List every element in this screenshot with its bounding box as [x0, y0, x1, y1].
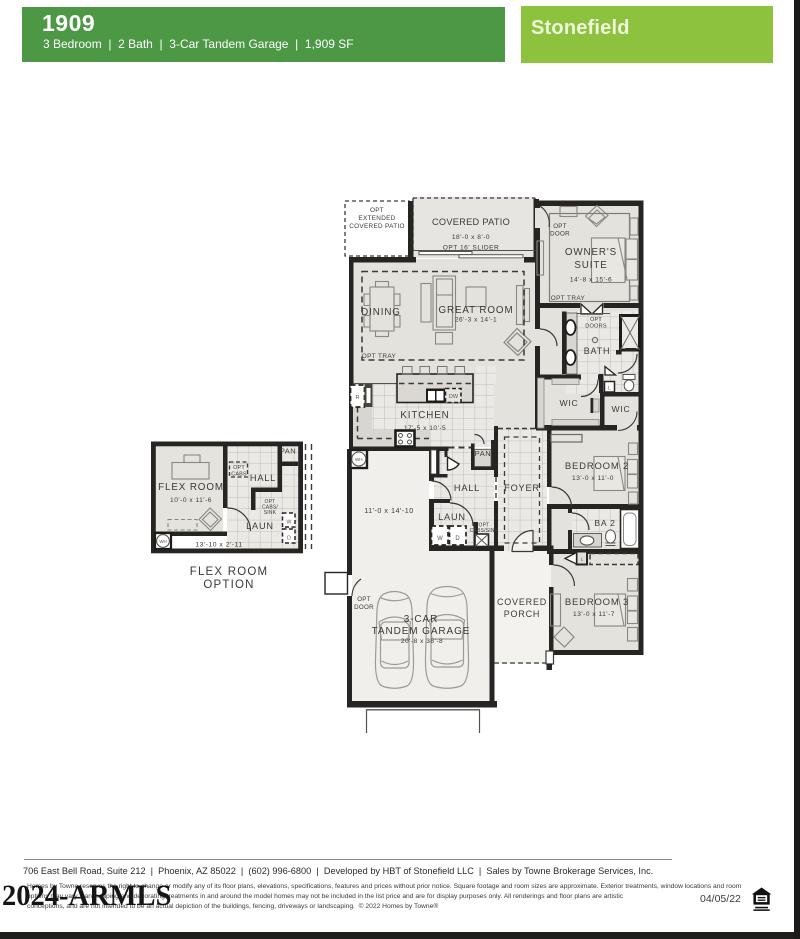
svg-text:20'-8 x 38'-8: 20'-8 x 38'-8	[401, 638, 443, 645]
svg-text:14'-8 x 15'-6: 14'-8 x 15'-6	[570, 277, 612, 284]
svg-text:BEDROOM 2: BEDROOM 2	[565, 461, 629, 472]
svg-text:17'-5 x 10'-5: 17'-5 x 10'-5	[404, 425, 446, 432]
svg-text:DINING: DINING	[361, 307, 401, 318]
svg-text:CABS: CABS	[231, 472, 247, 478]
svg-text:PAN: PAN	[475, 449, 492, 458]
svg-text:LAUN: LAUN	[246, 521, 274, 531]
svg-text:OPT TRAY: OPT TRAY	[362, 353, 397, 360]
svg-text:OPT: OPT	[357, 596, 371, 603]
svg-text:LAUN: LAUN	[438, 512, 466, 522]
svg-text:CABS/SINK: CABS/SINK	[470, 528, 499, 534]
svg-text:26'-3 x 14'-1: 26'-3 x 14'-1	[455, 317, 497, 324]
svg-text:13'-10 x 2'-11: 13'-10 x 2'-11	[195, 542, 242, 549]
svg-text:WH: WH	[159, 539, 166, 544]
svg-text:COVERED PATIO: COVERED PATIO	[432, 217, 510, 227]
svg-text:FOYER: FOYER	[504, 483, 540, 493]
svg-text:R: R	[356, 395, 360, 401]
svg-text:OPT: OPT	[553, 223, 567, 230]
svg-text:GREAT ROOM: GREAT ROOM	[438, 305, 513, 316]
svg-text:D: D	[455, 536, 460, 542]
svg-text:PORCH: PORCH	[504, 609, 541, 619]
svg-text:D: D	[287, 536, 291, 542]
svg-text:13'-0 x 11'-0: 13'-0 x 11'-0	[572, 475, 614, 482]
svg-text:FLEX ROOM: FLEX ROOM	[190, 566, 269, 578]
svg-text:COVERED: COVERED	[497, 597, 547, 607]
svg-text:COVERED PATIO: COVERED PATIO	[349, 223, 405, 230]
svg-text:11'-0 x 14'-10: 11'-0 x 14'-10	[364, 506, 414, 515]
svg-text:OPT: OPT	[233, 465, 245, 471]
svg-text:OPTION: OPTION	[203, 579, 254, 591]
svg-text:WIC: WIC	[611, 404, 630, 414]
svg-text:L: L	[581, 557, 584, 563]
svg-text:HALL: HALL	[250, 473, 276, 483]
svg-text:HALL: HALL	[454, 483, 480, 493]
svg-text:KITCHEN: KITCHEN	[400, 410, 449, 421]
svg-text:DW: DW	[449, 394, 459, 400]
svg-text:DOOR: DOOR	[550, 231, 570, 238]
svg-text:10'-0 x 11'-6: 10'-0 x 11'-6	[170, 497, 212, 504]
svg-text:FLEX ROOM: FLEX ROOM	[158, 482, 224, 493]
svg-text:BATH: BATH	[584, 346, 611, 356]
svg-text:BA 2: BA 2	[594, 518, 615, 528]
svg-text:OWNER'S: OWNER'S	[565, 247, 617, 258]
svg-text:OPT TRAY: OPT TRAY	[551, 295, 586, 302]
svg-text:OPT 16' SLIDER: OPT 16' SLIDER	[443, 245, 500, 252]
svg-text:L: L	[608, 386, 611, 392]
svg-text:SINK: SINK	[264, 510, 277, 516]
svg-text:W: W	[437, 536, 443, 542]
svg-text:DOORS: DOORS	[585, 324, 607, 330]
svg-text:13'-0 x 11'-7: 13'-0 x 11'-7	[573, 611, 615, 618]
svg-text:EXTENDED: EXTENDED	[358, 215, 395, 222]
svg-text:PAN: PAN	[280, 447, 296, 456]
svg-text:W: W	[287, 520, 292, 526]
svg-text:SUITE: SUITE	[574, 260, 607, 271]
svg-text:OPT: OPT	[590, 317, 602, 323]
svg-text:TANDEM GARAGE: TANDEM GARAGE	[372, 626, 471, 637]
svg-text:DOOR: DOOR	[354, 604, 374, 611]
svg-text:3-CAR: 3-CAR	[404, 614, 439, 625]
svg-text:OPT: OPT	[370, 207, 384, 214]
svg-text:BEDROOM 3: BEDROOM 3	[565, 597, 629, 608]
svg-text:WH: WH	[355, 457, 363, 462]
svg-text:WIC: WIC	[559, 398, 578, 408]
svg-text:18'-0 x 8'-0: 18'-0 x 8'-0	[452, 234, 490, 241]
